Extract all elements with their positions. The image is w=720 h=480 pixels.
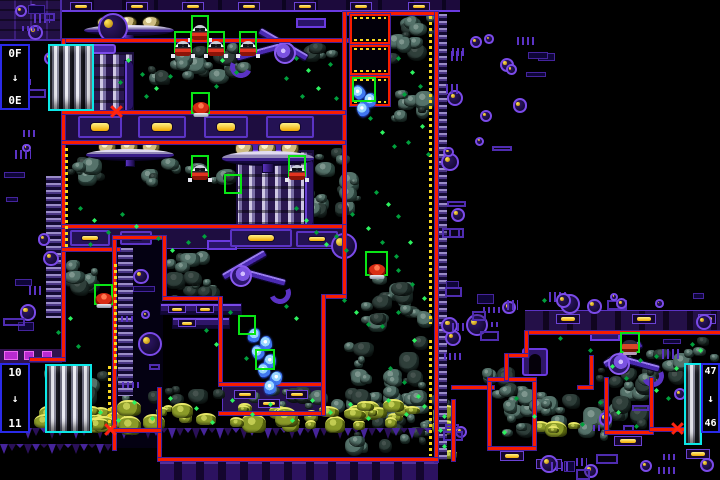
tech-orb — [696, 314, 712, 330]
lamp — [614, 436, 642, 446]
tech-panel — [576, 469, 590, 480]
tech-panel — [632, 405, 649, 412]
ground-spike — [224, 428, 232, 436]
elevator-label-box-bottom-right: 47 ↓ 46 — [701, 363, 720, 433]
tech-panel — [472, 311, 486, 321]
sparkle — [396, 268, 401, 273]
selection-box-frog[interactable] — [94, 284, 113, 305]
hazard-strip — [429, 340, 432, 456]
frog-enemy-sprite — [368, 264, 385, 277]
room-border-line — [219, 412, 325, 415]
cave-rock — [184, 271, 202, 285]
ground-spike — [56, 444, 64, 451]
moss-rock — [548, 426, 560, 434]
cave-rock — [697, 337, 709, 344]
moss-rock — [117, 400, 141, 416]
ground-spike — [200, 428, 208, 436]
ground-spike — [184, 428, 192, 433]
cave-rock — [555, 407, 565, 413]
cave-rock — [372, 295, 392, 309]
tech-slot — [133, 286, 155, 293]
room-border-line — [578, 386, 593, 389]
tech-orb — [640, 460, 652, 472]
room-id-label: 0F — [8, 48, 21, 59]
ceiling-lamp — [350, 2, 372, 11]
selection-box[interactable] — [352, 77, 376, 102]
ceiling-lamp — [238, 2, 260, 11]
selection-box[interactable] — [255, 349, 275, 370]
hazard-strip — [65, 148, 68, 248]
cave-rock — [370, 313, 386, 324]
cave-rock — [155, 70, 171, 84]
cave-rock — [391, 282, 412, 295]
cave-rock — [612, 396, 632, 412]
sparkle — [214, 84, 219, 89]
cave-rock — [360, 374, 371, 383]
sparkle — [68, 316, 73, 321]
tech-panel — [44, 13, 55, 21]
tech-orb — [480, 110, 492, 122]
ground-spike — [96, 444, 104, 454]
cave-rock — [188, 389, 209, 403]
cave-rock — [562, 394, 580, 409]
sparkle — [380, 130, 385, 135]
crab-enemy-sprite — [622, 340, 638, 353]
cave-rock — [710, 354, 720, 361]
tech-bars — [15, 150, 31, 159]
sparkle — [422, 296, 427, 301]
ground-spike — [208, 428, 216, 433]
bottom-band-region — [160, 461, 438, 480]
room-border-line — [62, 141, 345, 144]
ceiling-lamp — [408, 2, 430, 11]
tech-orb — [133, 269, 148, 284]
tech-orb — [587, 299, 602, 314]
room-border-line — [605, 431, 653, 434]
tech-slot — [4, 172, 26, 178]
selection-box-hopper[interactable] — [191, 155, 209, 177]
cave-rock — [358, 356, 366, 364]
tech-panel — [445, 287, 462, 297]
sparkle — [300, 94, 305, 99]
tech-bars — [491, 322, 501, 327]
tech-bars — [658, 467, 678, 474]
tech-slot — [477, 294, 494, 303]
cave-rock — [182, 71, 194, 79]
cave-rock — [413, 336, 427, 349]
moss-rock — [305, 420, 316, 430]
cave-rock — [499, 386, 514, 396]
sparkle — [144, 94, 149, 99]
cave-rock — [64, 271, 85, 284]
cave-rock — [418, 382, 426, 388]
frog-enemy-sprite — [95, 293, 112, 306]
cave-rock — [379, 439, 392, 452]
tech-slot — [693, 293, 704, 299]
lamp — [234, 390, 256, 399]
selection-box-frog[interactable] — [365, 251, 388, 276]
cave-rock — [409, 23, 427, 34]
room-border-line — [488, 378, 536, 381]
tech-bars — [663, 454, 677, 460]
cave-rock — [541, 407, 551, 415]
x-marker — [104, 423, 117, 436]
tech-orb — [506, 64, 517, 75]
hopper-enemy-sprite — [208, 41, 224, 56]
elevator-label-box-top-left: 0F ↓ 0E — [0, 44, 30, 110]
sparkle — [368, 116, 373, 121]
room-border-line — [343, 12, 346, 228]
tech-slot — [663, 339, 681, 344]
sparkle — [92, 218, 97, 223]
room-id-label: 0E — [8, 95, 21, 106]
selection-box-crab[interactable] — [620, 332, 640, 353]
lamp — [286, 390, 308, 399]
sparkle — [120, 212, 125, 217]
ground-spike — [408, 428, 416, 439]
tech-orb — [513, 98, 527, 112]
ground-spike — [312, 428, 320, 439]
tech-orb — [38, 233, 50, 245]
down-arrow-icon: ↓ — [707, 393, 714, 404]
hopper-enemy-sprite — [289, 165, 305, 180]
room-border-line — [62, 225, 345, 228]
ground-spike — [64, 444, 72, 448]
tech-panel — [480, 331, 499, 342]
ceiling-lamp — [182, 2, 204, 11]
tech-orb — [655, 299, 664, 308]
machine-box — [230, 229, 292, 247]
sparkle — [342, 298, 347, 303]
tech-panel — [149, 364, 160, 370]
cave-rock — [507, 415, 516, 422]
ceiling-lamp — [126, 2, 148, 11]
ground-spike — [0, 444, 8, 454]
tech-bars — [551, 462, 568, 471]
ground-spike — [368, 428, 376, 436]
ground-spike — [48, 444, 56, 454]
ground-spike — [88, 444, 96, 448]
tech-orb — [700, 458, 714, 472]
sparkle — [316, 86, 321, 91]
sparkle — [410, 70, 415, 75]
cave-rock — [315, 162, 335, 176]
tech-panel — [447, 201, 466, 207]
cave-rock — [72, 162, 86, 171]
tech-bars — [451, 51, 462, 61]
room-border-line — [343, 225, 346, 298]
moss-rock — [385, 417, 397, 427]
elevator-tube[interactable] — [684, 363, 702, 445]
moss-rock — [230, 417, 244, 427]
sparkle — [418, 84, 423, 89]
room-border-line — [30, 358, 65, 361]
tech-bars — [483, 307, 504, 314]
lamp — [168, 305, 186, 313]
claw-joint — [231, 265, 253, 287]
tech-bars — [662, 349, 681, 359]
room-border-line — [590, 356, 593, 388]
x-marker — [110, 105, 123, 118]
selection-box-frog[interactable] — [191, 92, 210, 114]
selection-box-hopper[interactable] — [207, 31, 225, 53]
room-border-line — [163, 236, 166, 300]
ceiling-lamp — [70, 2, 92, 11]
room-id-label: 11 — [8, 418, 21, 429]
x-marker — [671, 422, 684, 435]
tech-panel — [3, 318, 25, 326]
tech-panel — [492, 146, 512, 151]
sparkle — [386, 202, 391, 207]
hopper-enemy-sprite — [240, 41, 256, 56]
machine-box — [266, 116, 314, 138]
ground-spike — [400, 428, 408, 433]
elevator-label-box-bottom-left: 10 ↓ 11 — [0, 363, 30, 433]
room-border-line — [113, 429, 161, 432]
moss-rock — [353, 420, 365, 430]
ground-spike — [232, 428, 240, 433]
magenta-block — [4, 351, 18, 360]
tech-bars — [29, 286, 41, 295]
claw-joint — [608, 353, 630, 375]
tech-panel — [596, 454, 618, 464]
room-id-label: 10 — [8, 367, 21, 378]
sparkle — [194, 406, 199, 411]
machine-box — [78, 116, 122, 138]
saucer-platform — [86, 140, 174, 167]
sparkle — [542, 298, 547, 303]
tech-orb — [616, 298, 626, 308]
tech-orb — [141, 310, 150, 319]
ground-spike — [176, 428, 184, 436]
ground-spike — [104, 444, 112, 451]
ground-spike — [384, 428, 392, 439]
machine-box — [138, 116, 186, 138]
moss-rock — [242, 414, 266, 433]
moss-rock — [172, 403, 192, 418]
tech-bars — [121, 316, 136, 322]
sparkle — [354, 310, 359, 315]
saucer-stem — [262, 163, 273, 173]
tech-bars — [507, 300, 518, 311]
moss-rock — [119, 416, 142, 435]
cave-rock — [400, 305, 412, 314]
tech-bars — [517, 37, 535, 44]
cave-rock — [516, 423, 527, 430]
tech-bars — [444, 353, 465, 360]
tech-orb — [138, 332, 162, 356]
hazard-strip — [429, 16, 432, 324]
ceiling-lamp — [294, 2, 316, 11]
tech-bars — [22, 26, 39, 31]
hazard-strip — [114, 264, 117, 372]
ground-spike — [16, 444, 24, 448]
sparkle — [154, 86, 159, 91]
ground-spike — [32, 444, 40, 451]
sparkle — [140, 72, 145, 77]
room-border-line — [505, 354, 528, 357]
moss-rock — [568, 422, 580, 428]
sparkle — [666, 396, 671, 401]
ladder-rungs — [46, 176, 62, 318]
claw-mount — [296, 18, 326, 28]
sparkle — [78, 206, 83, 211]
tech-orb — [556, 293, 571, 308]
cave-rock — [668, 369, 686, 384]
corridor-band-region — [525, 310, 720, 331]
tech-slot — [28, 5, 46, 15]
cave-rock — [418, 107, 426, 112]
cave-rock — [213, 389, 226, 397]
selection-box[interactable] — [224, 174, 242, 194]
sparkle — [558, 336, 563, 341]
tower-pipe — [124, 60, 134, 111]
sparkle — [380, 240, 385, 245]
hopper-enemy-sprite — [175, 41, 191, 56]
cave-rock — [204, 62, 212, 69]
tech-slot — [6, 197, 18, 203]
room-border-line — [435, 12, 438, 462]
room-border-line — [62, 248, 120, 251]
cave-rock — [394, 110, 406, 121]
tech-bars — [593, 425, 603, 431]
room-border-line — [488, 447, 536, 450]
tech-panel — [449, 228, 459, 238]
tech-bars — [452, 323, 466, 331]
ground-spike — [80, 444, 88, 451]
room-border-line — [158, 388, 161, 461]
ground-spike — [416, 428, 424, 436]
tech-slot — [526, 72, 546, 77]
hopper-enemy-sprite — [192, 25, 208, 40]
moss-rock — [143, 414, 165, 430]
cave-rock — [146, 178, 158, 187]
lamp — [556, 314, 580, 324]
room-border-line — [322, 295, 325, 415]
cave-rock — [316, 194, 328, 202]
room-border-line — [650, 378, 653, 434]
sparkle — [394, 254, 399, 259]
lamp — [500, 451, 524, 461]
sparkle — [406, 140, 411, 145]
cave-rock — [91, 268, 98, 275]
machine-box — [204, 116, 248, 138]
lamp — [178, 319, 196, 327]
room-id-label: 47 — [704, 367, 716, 377]
ground-spike — [392, 428, 400, 436]
sparkle — [374, 190, 379, 195]
sparkle — [76, 344, 81, 349]
selection-box-hopper[interactable] — [239, 31, 257, 53]
cave-rock — [419, 437, 427, 444]
tech-bars — [576, 458, 587, 466]
cave-rock — [148, 66, 156, 73]
cave-rock — [176, 59, 190, 70]
claw-joint — [274, 42, 296, 64]
tech-slot — [528, 52, 548, 60]
room-border-line — [158, 458, 438, 461]
ground-spike — [72, 444, 80, 454]
room-id-label: 46 — [704, 419, 716, 429]
saucer-stem — [125, 159, 136, 167]
hopper-enemy-sprite — [192, 165, 208, 180]
ground-spike — [168, 428, 176, 439]
lamp — [196, 305, 214, 313]
tech-bars — [23, 130, 38, 137]
room-border-line — [322, 295, 346, 298]
shaft-door-frame — [350, 14, 390, 44]
sparkle — [690, 342, 695, 347]
moss-rock — [357, 401, 374, 411]
frog-enemy-sprite — [192, 102, 209, 115]
moss-rock — [238, 405, 249, 412]
elevator-tube[interactable] — [48, 44, 94, 111]
sparkle — [366, 226, 371, 231]
lamp — [632, 314, 656, 324]
tech-orb — [484, 34, 494, 44]
tech-slot — [15, 279, 33, 285]
tech-orb — [43, 251, 58, 266]
down-arrow-icon: ↓ — [12, 72, 19, 83]
selection-box-hopper[interactable] — [288, 155, 306, 177]
sparkle — [56, 330, 61, 335]
ground-spike — [192, 428, 200, 439]
cave-rock — [350, 179, 359, 185]
ceiling-region — [62, 0, 460, 12]
cave-rock — [339, 187, 357, 202]
ground-spike — [32, 428, 40, 436]
cave-rock — [165, 388, 174, 394]
sparkle — [392, 144, 397, 149]
hazard-strip — [108, 366, 111, 428]
cave-rock — [637, 419, 647, 428]
tech-orb — [451, 208, 465, 222]
sparkle — [334, 96, 339, 101]
ground-spike — [272, 428, 280, 436]
ground-spike — [8, 444, 16, 451]
cave-rock — [305, 403, 313, 409]
cave-rock — [353, 342, 374, 355]
ground-spike — [376, 428, 384, 433]
ground-spike — [216, 428, 224, 439]
shaft-door-frame — [350, 45, 390, 75]
cave-rock — [166, 272, 186, 289]
down-arrow-icon: ↓ — [12, 393, 19, 404]
room-border-line — [605, 378, 608, 434]
tech-bars — [122, 382, 141, 389]
tech-orb — [475, 137, 484, 146]
cave-rock — [165, 259, 176, 268]
moss-rock — [325, 416, 344, 433]
selection-box[interactable] — [238, 315, 256, 335]
selection-box-hopper[interactable] — [174, 31, 192, 53]
elevator-tube[interactable] — [45, 364, 92, 433]
sparkle — [420, 124, 425, 129]
sparkle — [396, 214, 401, 219]
ground-spike — [40, 444, 48, 448]
tech-orb — [470, 36, 482, 48]
room-border-line — [219, 297, 222, 386]
tech-bars — [446, 84, 461, 94]
ground-spike — [24, 444, 32, 454]
level-map-canvas: 0F ↓ 0E 10 ↓ 11 47 ↓ 46 — [0, 0, 720, 480]
cave-rock — [315, 154, 324, 160]
sparkle — [244, 356, 249, 361]
room-border-line — [452, 400, 455, 461]
sparkle — [294, 316, 299, 321]
sparkle — [408, 240, 413, 245]
room-border-line — [505, 354, 508, 380]
